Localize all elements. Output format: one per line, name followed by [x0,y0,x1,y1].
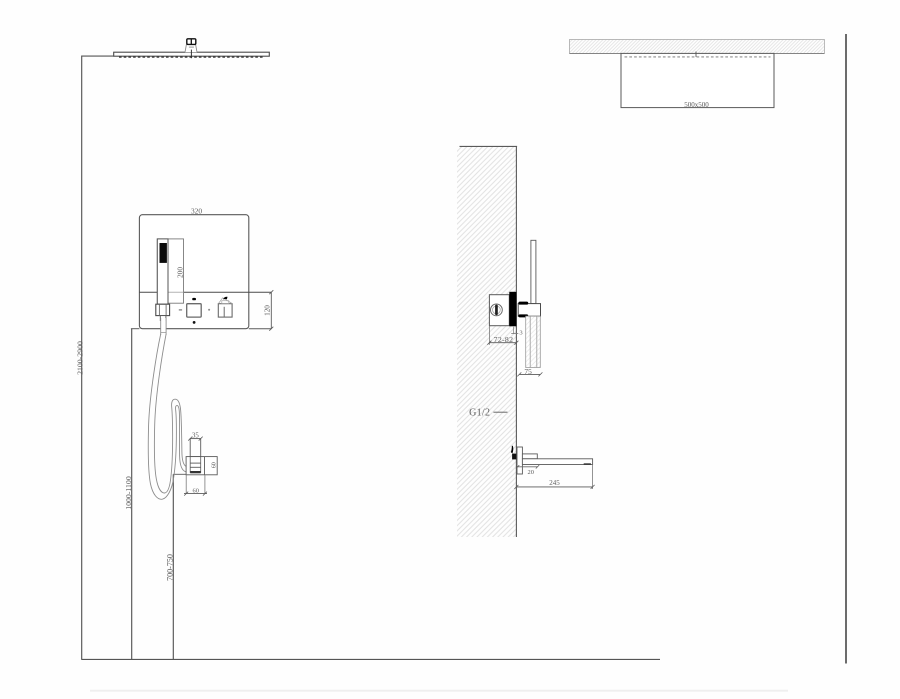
svg-text:3: 3 [519,330,523,337]
svg-text:35: 35 [192,433,199,440]
svg-text:72-82: 72-82 [494,335,514,344]
svg-text:1000-1100: 1000-1100 [124,476,133,510]
svg-text:320: 320 [191,207,202,216]
svg-text:200: 200 [175,267,184,278]
svg-text:60: 60 [193,488,199,495]
svg-text:75: 75 [524,367,532,376]
svg-text:60: 60 [211,462,218,468]
svg-text:2100-2900: 2100-2900 [76,341,85,375]
svg-text:700-750: 700-750 [166,554,175,581]
svg-text:20: 20 [528,469,534,476]
svg-text:G1/2: G1/2 [469,407,490,418]
svg-text:120: 120 [264,305,272,316]
svg-text:245: 245 [549,479,560,487]
svg-text:500x500: 500x500 [684,101,709,109]
